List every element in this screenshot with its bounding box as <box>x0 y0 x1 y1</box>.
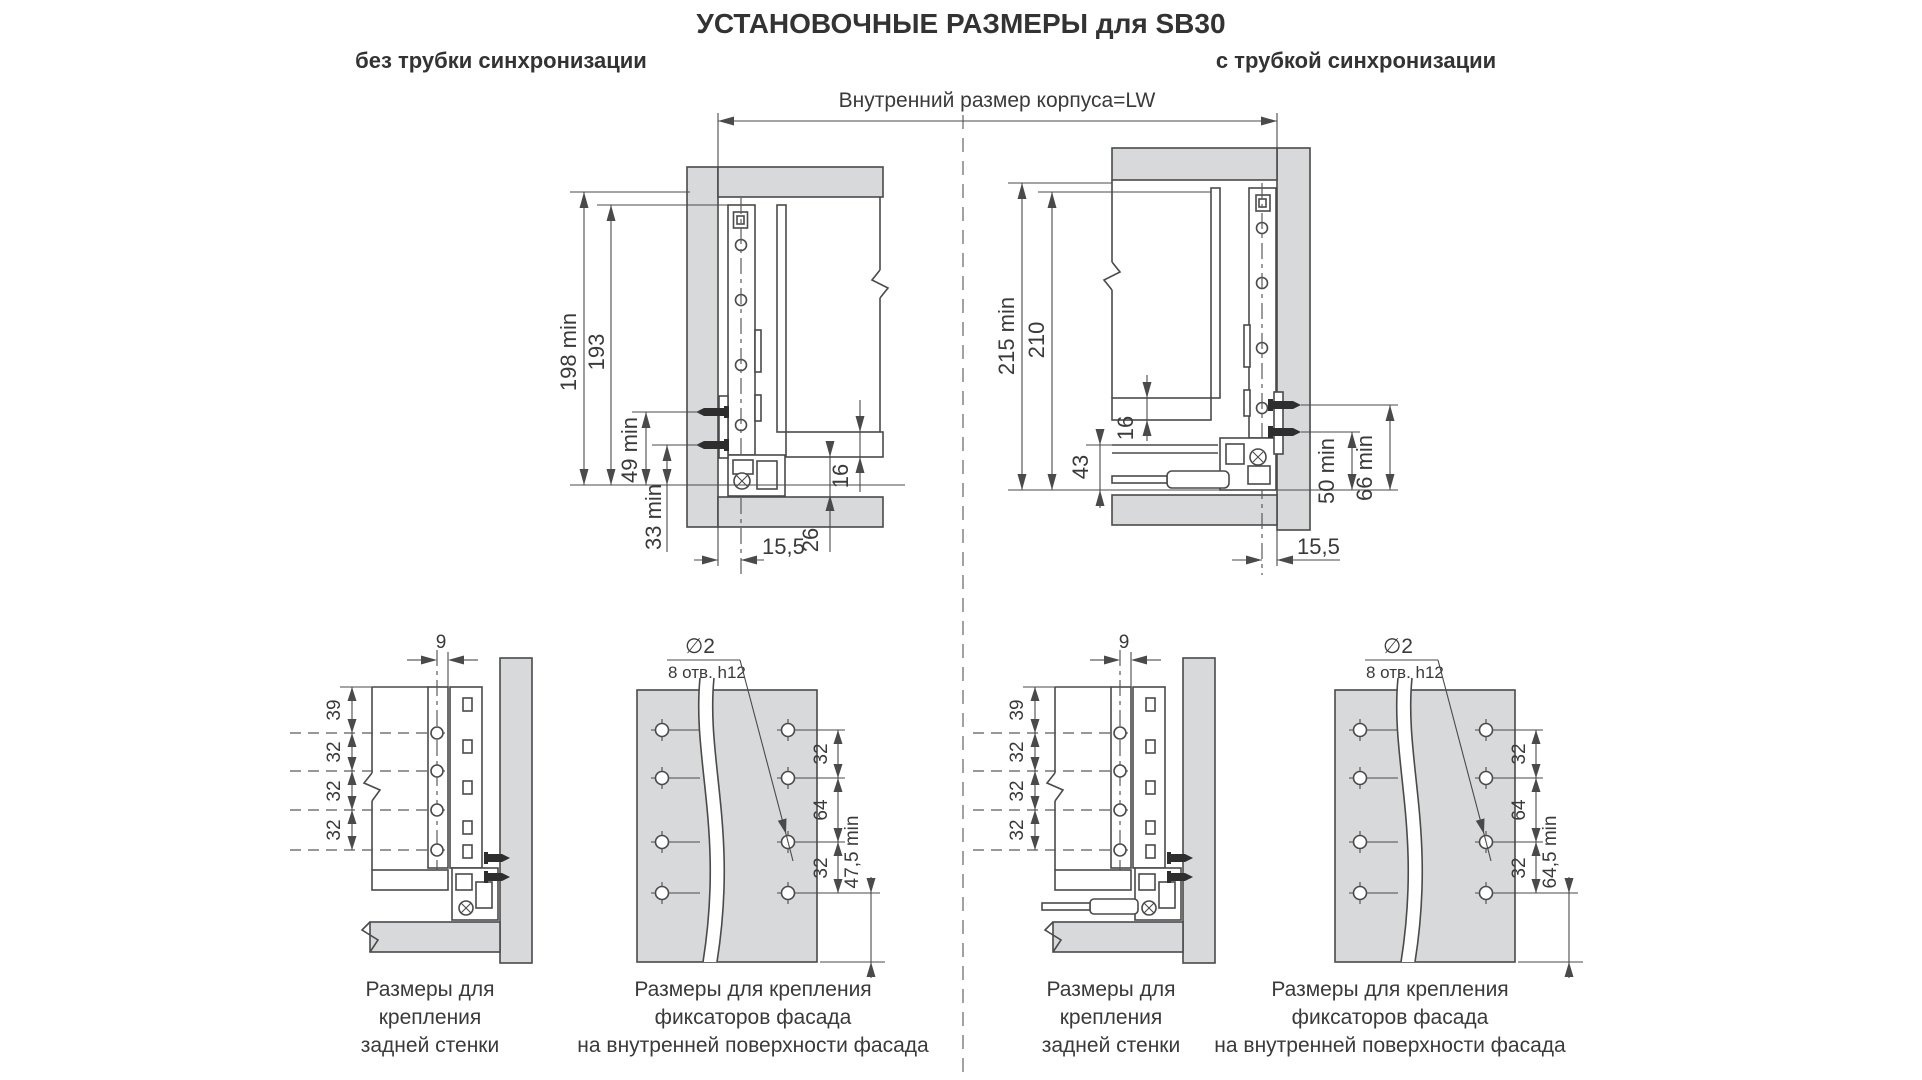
caption-line: на внутренней поверхности фасада <box>1180 1032 1600 1060</box>
svg-text:9: 9 <box>436 632 447 653</box>
technical-drawing: Внутренний размер корпуса=LW 198 min 193 <box>0 0 1922 1080</box>
drawer-bottom <box>786 432 883 457</box>
holes-note: 8 отв. h12 <box>668 663 746 682</box>
cabinet-bottom-panel <box>1053 922 1183 952</box>
caption-line: Размеры для <box>310 976 550 1004</box>
cabinet-side-panel <box>1277 148 1310 530</box>
back-wall-drawing-left: 9 39 32 32 32 <box>290 632 532 963</box>
svg-text:32: 32 <box>811 743 832 764</box>
svg-text:43: 43 <box>1068 455 1093 479</box>
svg-text:32: 32 <box>324 819 345 840</box>
dim-chain-facade: 32 64 32 <box>1509 730 1541 893</box>
break-mark <box>1104 262 1120 290</box>
dim-43: 43 <box>1068 429 1112 508</box>
drawer-bottom <box>372 870 448 890</box>
svg-text:193: 193 <box>584 334 609 371</box>
drawer-side <box>1211 188 1220 398</box>
facade-drawing-left: ∅2 8 отв. h12 32 64 32 <box>637 635 885 978</box>
synchronization-tube <box>1090 899 1138 914</box>
svg-text:47,5 min: 47,5 min <box>842 816 863 889</box>
cabinet-bottom-panel <box>370 922 500 952</box>
svg-text:39: 39 <box>324 699 345 720</box>
drawer-profile <box>450 687 482 868</box>
back-wall-drawing-right: 9 39 32 32 32 <box>973 632 1215 963</box>
caption-line: Размеры для крепления <box>543 976 963 1004</box>
svg-text:15,5: 15,5 <box>1297 534 1340 559</box>
dim-chain-back-wall: 39 32 32 32 <box>1007 687 1111 850</box>
break-mark <box>872 270 888 298</box>
svg-text:32: 32 <box>324 780 345 801</box>
dim-47-5-min: 47,5 min <box>820 816 885 978</box>
svg-text:32: 32 <box>1007 780 1028 801</box>
svg-text:66 min: 66 min <box>1352 435 1377 501</box>
svg-text:15,5: 15,5 <box>762 534 805 559</box>
drawing-sheet: УСТАНОВОЧНЫЕ РАЗМЕРЫ для SB30 без трубки… <box>0 0 1922 1080</box>
svg-text:64,5 min: 64,5 min <box>1540 816 1561 889</box>
drawer-side <box>777 205 786 432</box>
svg-text:49 min: 49 min <box>617 417 642 483</box>
lw-dimension-label: Внутренний размер корпуса=LW <box>839 89 1156 112</box>
drawer-profile <box>1133 687 1165 868</box>
cabinet-top-panel <box>1112 148 1277 180</box>
break-mark <box>1047 773 1063 801</box>
svg-text:9: 9 <box>1119 632 1130 653</box>
dim-9: 9 <box>1090 632 1161 687</box>
svg-text:64: 64 <box>1509 799 1530 821</box>
svg-text:16: 16 <box>1113 416 1138 440</box>
svg-text:32: 32 <box>324 741 345 762</box>
caption-facade-right: Размеры для крепления фиксаторов фасада … <box>1180 976 1600 1060</box>
back-wall-panel <box>500 658 532 963</box>
synchronization-tube <box>1167 471 1229 488</box>
cabinet-bottom-panel <box>1112 495 1277 525</box>
svg-text:50 min: 50 min <box>1314 438 1339 504</box>
caption-line: крепления <box>310 1004 550 1032</box>
svg-text:198 min: 198 min <box>556 313 581 391</box>
svg-text:33 min: 33 min <box>641 484 666 550</box>
svg-text:32: 32 <box>1007 819 1028 840</box>
caption-line: на внутренней поверхности фасада <box>543 1032 963 1060</box>
dim-chain-facade: 32 64 32 <box>811 730 843 893</box>
cabinet-side-panel <box>687 167 718 527</box>
caption-back-wall-left: Размеры для крепления задней стенки <box>310 976 550 1060</box>
caption-line: задней стенки <box>310 1032 550 1060</box>
section-view-with-tube: 215 min 210 16 43 <box>994 148 1398 575</box>
svg-text:32: 32 <box>1509 857 1530 878</box>
svg-text:32: 32 <box>811 857 832 878</box>
svg-text:32: 32 <box>1509 743 1530 764</box>
dim-15-5: 15,5 <box>1232 525 1340 566</box>
synchronization-rod <box>1042 903 1090 910</box>
dim-chain-back-wall: 39 32 32 32 <box>324 687 428 850</box>
break-mark <box>364 773 380 801</box>
drawer-bottom <box>1055 870 1131 890</box>
dim-15-5: 15,5 <box>694 527 805 566</box>
svg-text:39: 39 <box>1007 699 1028 720</box>
svg-text:215 min: 215 min <box>994 297 1019 375</box>
caption-facade-left: Размеры для крепления фиксаторов фасада … <box>543 976 963 1060</box>
caption-line: Размеры для крепления <box>1180 976 1600 1004</box>
dim-9: 9 <box>407 632 478 687</box>
caption-line: фиксаторов фасада <box>1180 1004 1600 1032</box>
caption-line: фиксаторов фасада <box>543 1004 963 1032</box>
svg-text:16: 16 <box>828 464 853 488</box>
cabinet-top-panel <box>718 167 883 197</box>
hole-diameter-label: ∅2 <box>1383 635 1413 658</box>
cabinet-bottom-panel <box>718 497 883 527</box>
svg-text:32: 32 <box>1007 741 1028 762</box>
back-wall-panel <box>1183 658 1215 963</box>
holes-note: 8 отв. h12 <box>1366 663 1444 682</box>
facade-drawing-right: ∅2 8 отв. h12 32 64 32 <box>1335 635 1583 978</box>
svg-text:210: 210 <box>1024 322 1049 359</box>
synchronization-rod <box>1112 476 1167 483</box>
svg-text:64: 64 <box>811 799 832 821</box>
dim-64-5-min: 64,5 min <box>1518 816 1583 978</box>
hole-diameter-label: ∅2 <box>685 635 715 658</box>
